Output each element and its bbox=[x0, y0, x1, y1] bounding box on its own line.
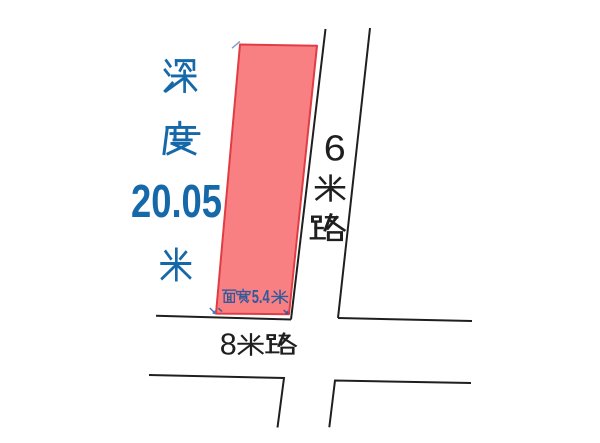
svg-text:5.4: 5.4 bbox=[252, 286, 270, 307]
svg-text:8: 8 bbox=[220, 328, 237, 362]
svg-text:20.05: 20.05 bbox=[131, 175, 222, 227]
svg-text:6: 6 bbox=[324, 128, 346, 169]
